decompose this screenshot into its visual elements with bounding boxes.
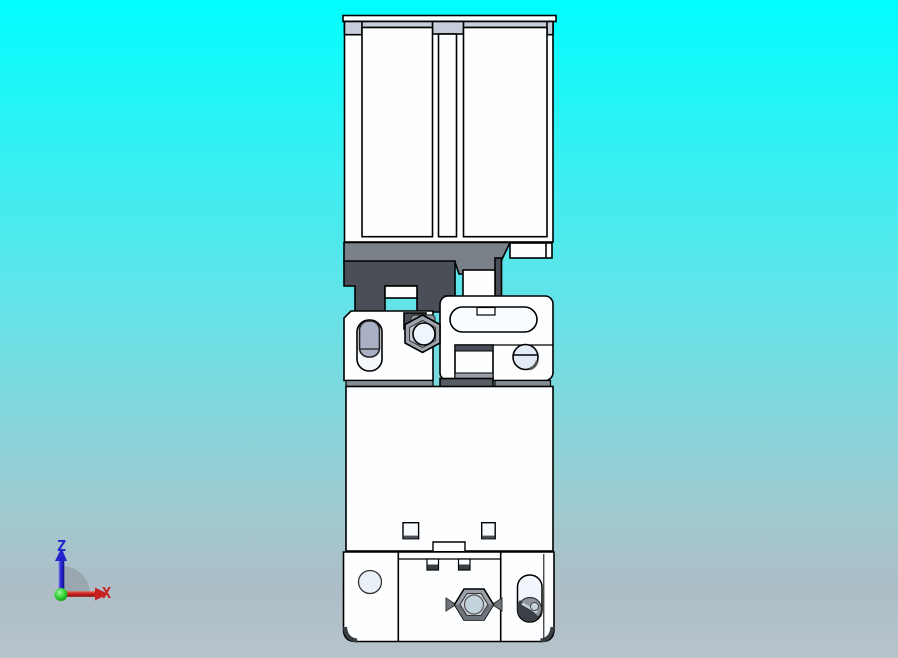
model-switch-body — [344, 296, 553, 400]
axis-triad: Z X — [55, 537, 112, 602]
plunger-pin — [360, 321, 380, 357]
origin-sphere — [55, 588, 68, 601]
cad-viewport[interactable]: Z X — [0, 0, 898, 658]
z-axis-label: Z — [57, 537, 66, 555]
base-slot-right — [517, 575, 542, 622]
hex-bolt-center — [465, 595, 484, 614]
hex-nut-hole — [413, 323, 435, 345]
x-axis-label: X — [102, 584, 111, 602]
lower-housing-box — [346, 387, 553, 552]
body-base-strip-left — [346, 381, 433, 387]
terminal-panel-right — [464, 28, 548, 237]
base-hole-left — [359, 571, 382, 594]
terminal-top-cap — [343, 16, 556, 22]
bracket-white-tab — [385, 286, 417, 298]
terminal-center-column — [439, 34, 457, 237]
terminal-band-corner-right — [547, 22, 553, 35]
model-base-plate — [344, 552, 555, 642]
triad-sector — [62, 566, 90, 594]
contact-window-bottom-band — [455, 373, 493, 379]
model-drawing: Z X — [0, 0, 898, 658]
model-lower-housing — [346, 387, 553, 552]
square-hole-right — [482, 523, 496, 539]
terminal-band-corner-left — [345, 22, 363, 35]
terminal-band-center — [433, 22, 464, 35]
housing-bottom-tab — [433, 542, 465, 551]
square-hole-left — [403, 523, 419, 539]
body-base-strip-right — [495, 381, 551, 387]
terminal-panel-left — [362, 28, 433, 237]
model-terminal-block — [343, 16, 556, 243]
contact-window-top-band — [455, 345, 493, 351]
mount-slot-tab — [477, 308, 495, 316]
base-notch-right — [459, 559, 471, 570]
base-notch-left — [427, 559, 439, 570]
